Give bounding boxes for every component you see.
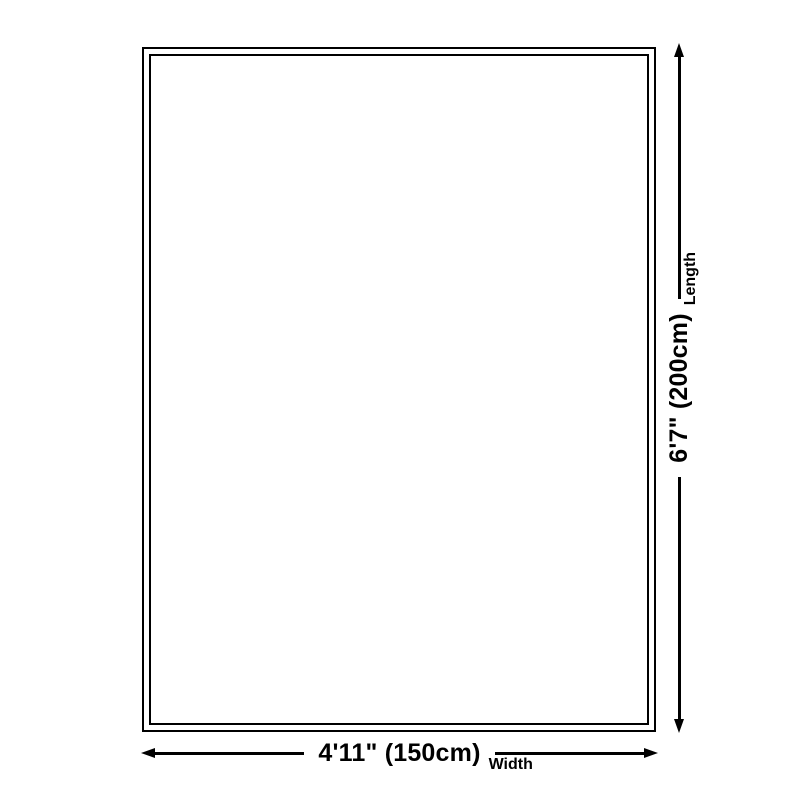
arrowhead-left-icon — [141, 748, 155, 758]
length-arrow-line — [678, 477, 681, 719]
width-value-label: 4'11" (150cm) — [304, 739, 494, 768]
arrowhead-down-icon — [674, 719, 684, 733]
product-outline-outer — [142, 47, 656, 732]
product-outline-inner — [149, 54, 649, 725]
arrowhead-right-icon — [644, 748, 658, 758]
width-arrow-line: Width — [495, 752, 644, 755]
width-arrow-line — [155, 752, 304, 755]
arrowhead-up-icon — [674, 43, 684, 57]
length-dimension-arrow: 6'7" (200cm) Length — [657, 43, 701, 733]
dimension-diagram: 6'7" (200cm) Length 4'11" (150cm) Width — [0, 0, 800, 800]
width-dimension-arrow: 4'11" (150cm) Width — [141, 731, 658, 775]
width-axis-label: Width — [489, 756, 533, 774]
length-value-label: 6'7" (200cm) — [665, 299, 694, 476]
length-axis-label: Length — [682, 252, 700, 305]
length-arrow-line: Length — [678, 57, 681, 299]
